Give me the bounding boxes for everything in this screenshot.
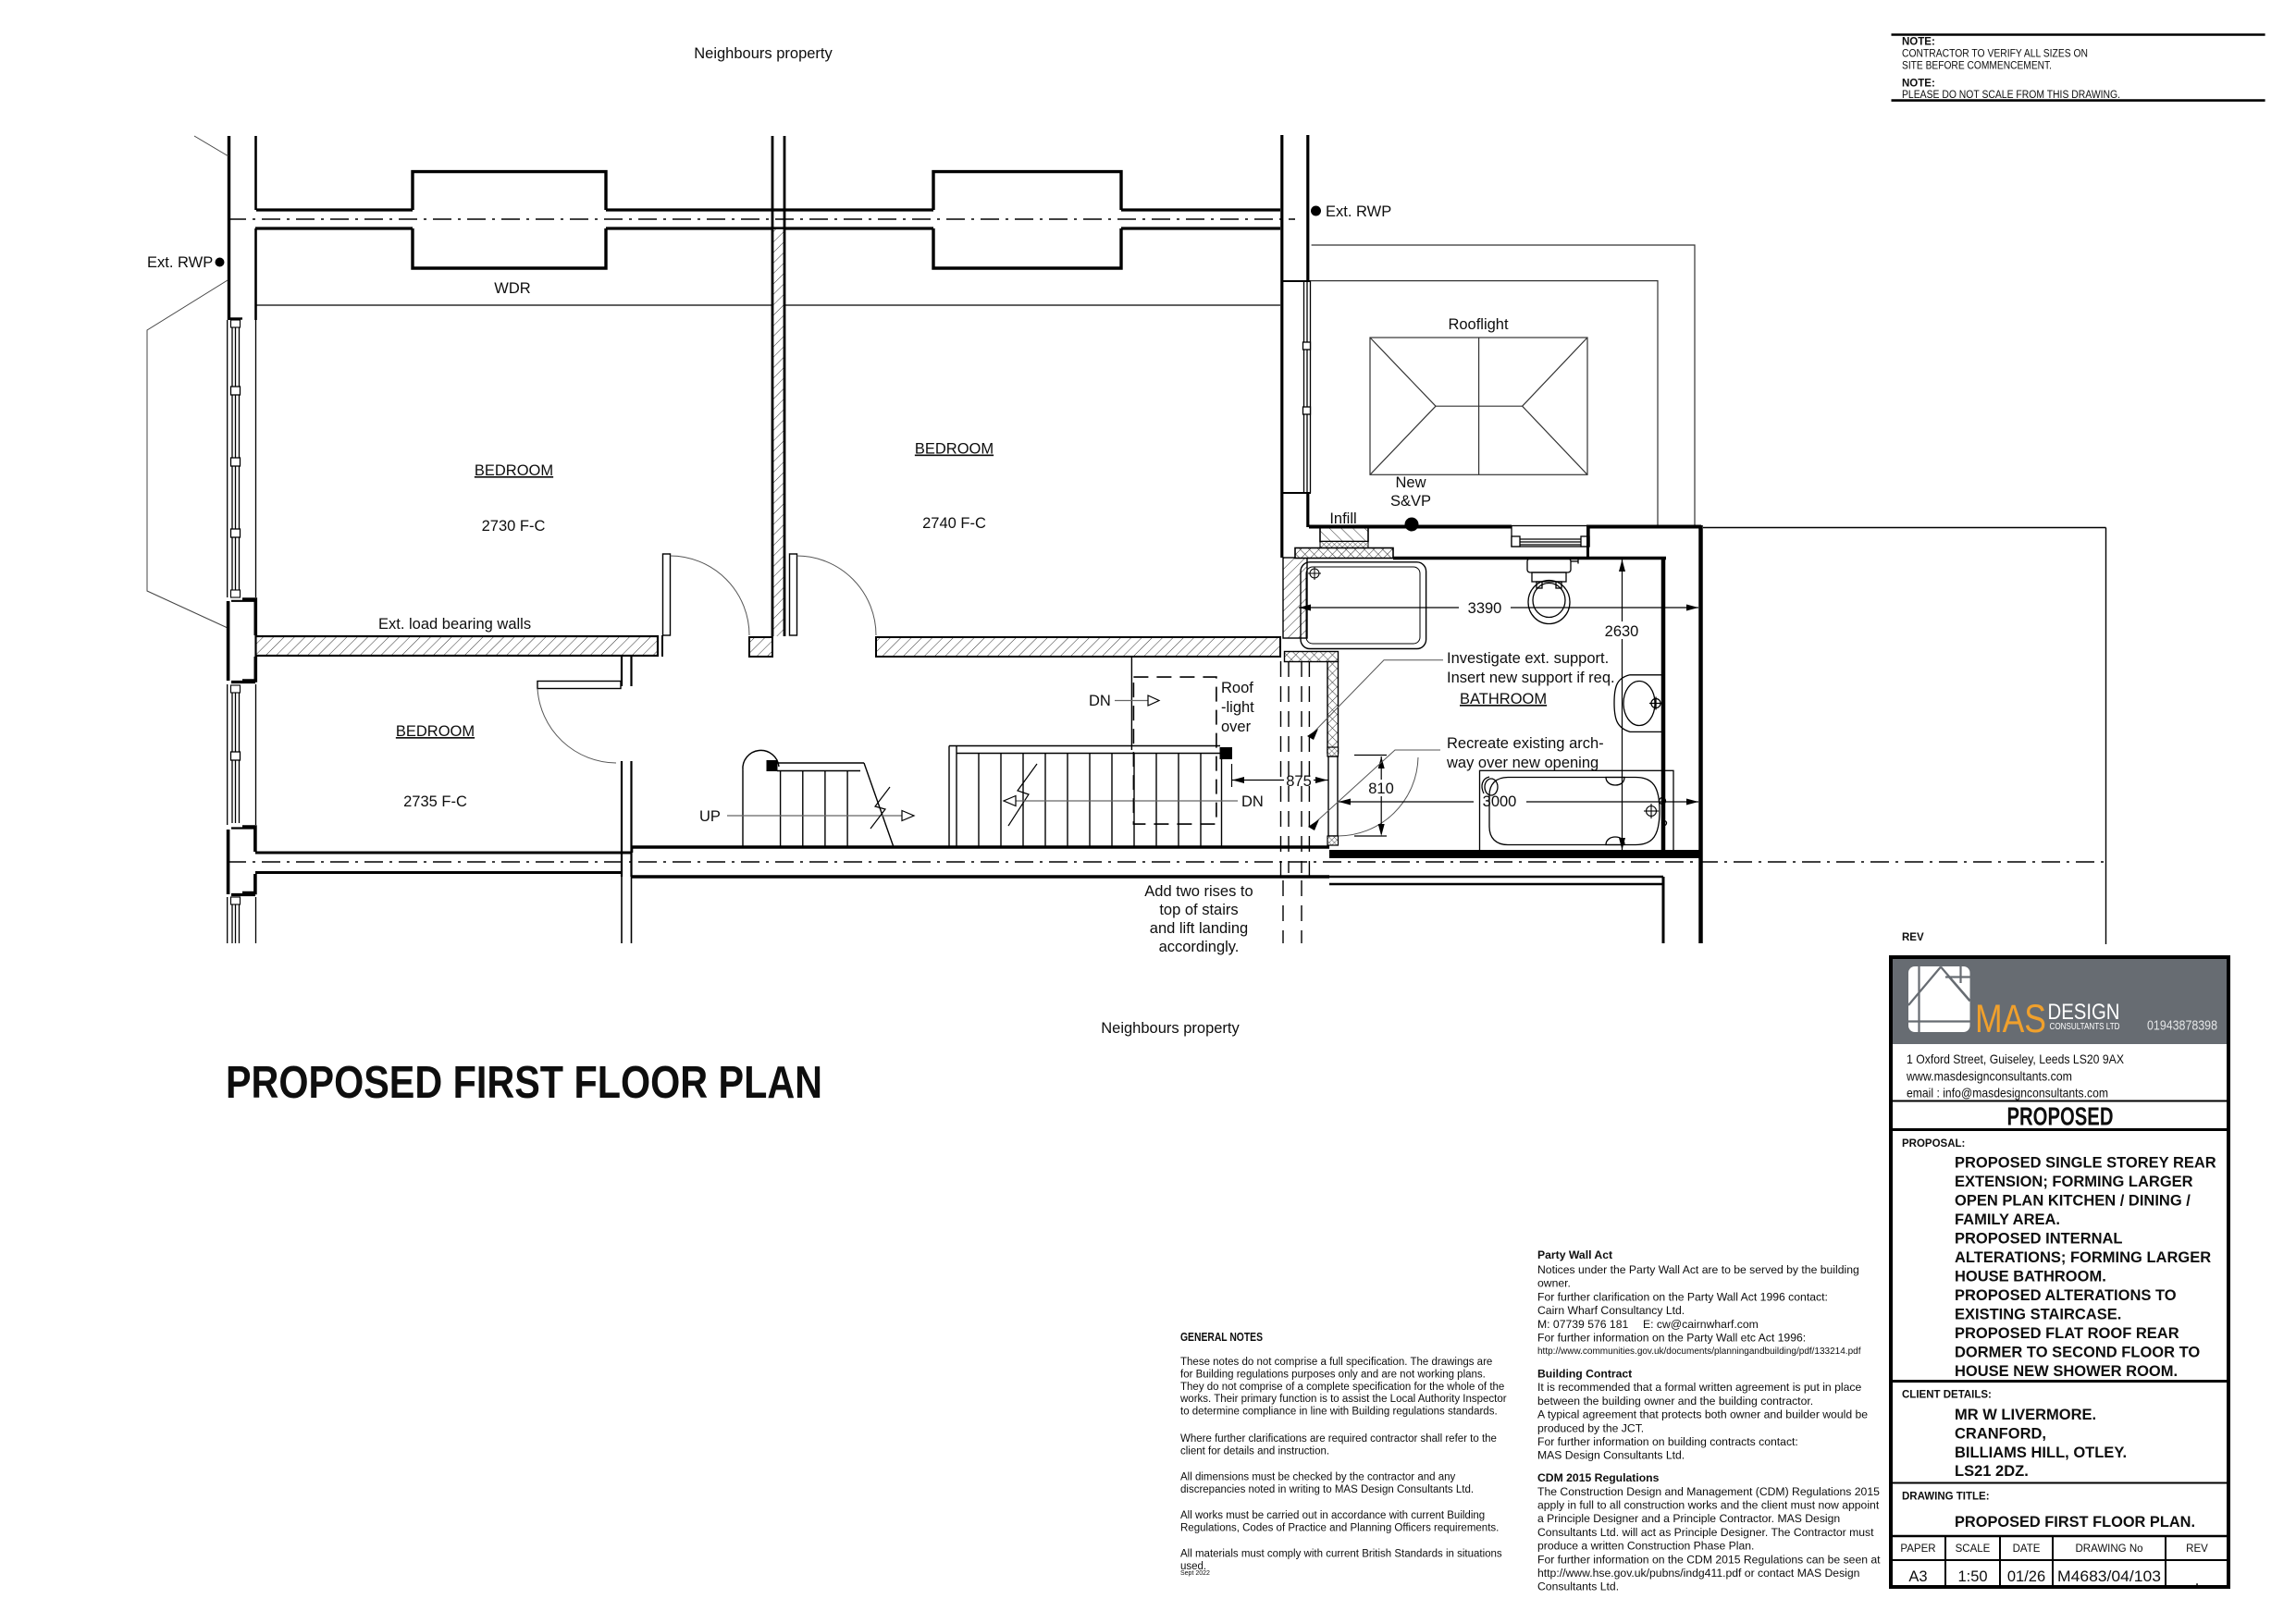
svg-text:DRAWING No: DRAWING No: [2075, 1543, 2142, 1555]
svg-text:Neighbours property: Neighbours property: [694, 45, 833, 62]
svg-text:DN: DN: [1241, 793, 1264, 810]
svg-text:BEDROOM: BEDROOM: [396, 723, 475, 740]
svg-text:www.masdesignconsultants.com: www.masdesignconsultants.com: [1906, 1068, 2072, 1083]
svg-text:OPEN PLAN KITCHEN / DINING /: OPEN PLAN KITCHEN / DINING /: [1955, 1193, 2191, 1210]
svg-text:The Construction Design and Ma: The Construction Design and Management (…: [1537, 1485, 1880, 1498]
svg-text:SCALE: SCALE: [1956, 1543, 1991, 1555]
svg-text:Building Contract: Building Contract: [1537, 1368, 1632, 1381]
svg-text:These notes do not comprise a: These notes do not comprise a full speci…: [1180, 1357, 1492, 1368]
svg-text:Insert new support if req.: Insert new support if req.: [1447, 670, 1615, 686]
svg-text:works. Their primary function: works. Their primary function is to assi…: [1179, 1394, 1507, 1405]
svg-text:BATHROOM: BATHROOM: [1460, 691, 1547, 707]
svg-text:NOTE:: NOTE:: [1902, 37, 1935, 48]
svg-text:Rooflight: Rooflight: [1448, 316, 1509, 333]
svg-text:Consultants Ltd.: Consultants Ltd.: [1537, 1580, 1619, 1593]
svg-text:-light: -light: [1221, 699, 1254, 716]
svg-text:ALTERATIONS; FORMING LARGER: ALTERATIONS; FORMING LARGER: [1955, 1249, 2211, 1266]
svg-text:875: 875: [1286, 773, 1312, 790]
svg-text:Regulations, Codes of Practice: Regulations, Codes of Practice and Plann…: [1180, 1522, 1499, 1533]
svg-text:Neighbours property: Neighbours property: [1101, 1020, 1240, 1037]
svg-text:PROPOSED: PROPOSED: [2007, 1102, 2114, 1131]
svg-text:3390: 3390: [1468, 600, 1502, 617]
svg-text:PROPOSED INTERNAL: PROPOSED INTERNAL: [1955, 1231, 2123, 1248]
svg-text:Where further clarifications a: Where further clarifications are require…: [1180, 1433, 1497, 1445]
svg-text:BEDROOM: BEDROOM: [915, 441, 994, 458]
svg-text:01943878398: 01943878398: [2147, 1019, 2217, 1034]
svg-text:for Building regulations purpo: for Building regulations purposes only a…: [1180, 1369, 1486, 1380]
svg-text:DRAWING TITLE:: DRAWING TITLE:: [1902, 1492, 1990, 1503]
svg-text:PROPOSED ALTERATIONS TO: PROPOSED ALTERATIONS TO: [1955, 1287, 2177, 1304]
svg-text:HOUSE BATHROOM.: HOUSE BATHROOM.: [1955, 1269, 2106, 1285]
svg-text:Roof: Roof: [1221, 680, 1253, 696]
svg-text:M: 07739 576 181: M: 07739 576 181: [1537, 1318, 1628, 1331]
svg-text:FAMILY AREA.: FAMILY AREA.: [1955, 1211, 2060, 1228]
svg-text:BEDROOM: BEDROOM: [475, 462, 553, 479]
svg-text:http://www.hse.gov.uk/pubns/in: http://www.hse.gov.uk/pubns/indg411.pdf …: [1537, 1567, 1859, 1580]
svg-text:LS21 2DZ.: LS21 2DZ.: [1955, 1463, 2029, 1480]
svg-text:For further information on bui: For further information on building cont…: [1537, 1435, 1798, 1448]
svg-text:REV: REV: [2186, 1543, 2208, 1555]
svg-text:apply in full to all construct: apply in full to all construction works …: [1537, 1499, 1880, 1512]
svg-text:Notices under the Party Wall A: Notices under the Party Wall Act are to …: [1537, 1263, 1859, 1276]
svg-text:For further clarification on t: For further clarification on the Party W…: [1537, 1290, 1828, 1303]
svg-text:Ext. RWP: Ext. RWP: [147, 254, 213, 271]
svg-text:CONTRACTOR TO VERIFY ALL SIZES: CONTRACTOR TO VERIFY ALL SIZES ON: [1902, 49, 2088, 60]
svg-text:2630: 2630: [1605, 623, 1639, 640]
svg-text:MR W LIVERMORE.: MR W LIVERMORE.: [1955, 1407, 2096, 1423]
svg-text:A typical agreement that prote: A typical agreement that protects both o…: [1537, 1408, 1868, 1421]
svg-text:MAS: MAS: [1975, 997, 2046, 1041]
svg-text:accordingly.: accordingly.: [1159, 939, 1240, 955]
svg-text:a Principle Designer and a Pri: a Principle Designer and a Principle Con…: [1537, 1512, 1840, 1525]
svg-text:2735 F-C: 2735 F-C: [403, 793, 467, 810]
svg-text:REV: REV: [1902, 932, 1924, 943]
svg-text:M4683/04/103: M4683/04/103: [2057, 1568, 2161, 1585]
svg-text:UP: UP: [699, 808, 721, 825]
svg-text:EXISTING STAIRCASE.: EXISTING STAIRCASE.: [1955, 1307, 2121, 1323]
svg-text:DN: DN: [1089, 693, 1111, 709]
svg-text:All works must be carried out: All works must be carried out in accorda…: [1180, 1510, 1485, 1521]
svg-text:CRANFORD,: CRANFORD,: [1955, 1425, 2046, 1442]
svg-text:S&VP: S&VP: [1390, 493, 1431, 510]
svg-text:DATE: DATE: [2013, 1543, 2041, 1555]
svg-text:All dimensions must be checked: All dimensions must be checked by the co…: [1180, 1472, 1455, 1483]
svg-text:Ext. load bearing walls: Ext. load bearing walls: [378, 616, 531, 633]
svg-text:top of stairs: top of stairs: [1159, 902, 1238, 918]
svg-text:It is recommended that a forma: It is recommended that a formal written …: [1537, 1381, 1861, 1394]
svg-text:Cairn Wharf Consultancy Ltd.: Cairn Wharf Consultancy Ltd.: [1537, 1304, 1685, 1317]
svg-text:and lift landing: and lift landing: [1150, 920, 1248, 937]
svg-text:810: 810: [1368, 781, 1394, 797]
svg-text:email : info@masdesignconsulta: email : info@masdesignconsultants.com: [1907, 1086, 2108, 1100]
svg-text:2730 F-C: 2730 F-C: [482, 518, 546, 535]
svg-text:CDM 2015 Regulations: CDM 2015 Regulations: [1537, 1471, 1660, 1484]
svg-text:3000: 3000: [1483, 793, 1517, 810]
svg-text:Add two rises to: Add two rises to: [1144, 883, 1253, 900]
svg-text:PROPOSED FIRST FLOOR PLAN: PROPOSED FIRST FLOOR PLAN: [226, 1058, 822, 1108]
svg-text:Party Wall Act: Party Wall Act: [1537, 1248, 1612, 1261]
svg-text:MAS Design Consultants Ltd.: MAS Design Consultants Ltd.: [1537, 1449, 1685, 1462]
svg-text:produce a written Construction: produce a written Construction Phase Pla…: [1537, 1540, 1754, 1553]
svg-text:to determine compliance in lin: to determine compliance in line with Bui…: [1180, 1407, 1498, 1418]
svg-text:Recreate existing arch-: Recreate existing arch-: [1447, 735, 1604, 752]
svg-text:All materials must comply with: All materials must comply with current B…: [1180, 1549, 1502, 1560]
svg-text:New: New: [1395, 474, 1426, 491]
svg-text:A3: A3: [1908, 1568, 1927, 1585]
svg-text:PROPOSED FIRST FLOOR PLAN.: PROPOSED FIRST FLOOR PLAN.: [1955, 1514, 2195, 1531]
svg-text:NOTE:: NOTE:: [1902, 79, 1935, 90]
svg-text:HOUSE NEW SHOWER ROOM.: HOUSE NEW SHOWER ROOM.: [1955, 1363, 2178, 1380]
svg-text:over: over: [1221, 719, 1252, 735]
svg-text:PAPER: PAPER: [1900, 1543, 1935, 1555]
svg-text:between the building owner and: between the building owner and the build…: [1537, 1395, 1813, 1408]
svg-text:client for details and instruc: client for details and instruction.: [1180, 1445, 1329, 1457]
svg-text:discrepancies noted in writing: discrepancies noted in writing to MAS De…: [1180, 1484, 1474, 1495]
svg-text:1 Oxford Street, Guiseley, Lee: 1 Oxford Street, Guiseley, Leeds LS20 9A…: [1907, 1051, 2125, 1066]
svg-text:Infill: Infill: [1329, 510, 1356, 527]
svg-text:For further information on the: For further information on the Party Wal…: [1537, 1332, 1806, 1345]
svg-text:For further information on the: For further information on the CDM 2015 …: [1537, 1553, 1881, 1566]
svg-text:PROPOSED SINGLE STOREY REAR: PROPOSED SINGLE STOREY REAR: [1955, 1155, 2216, 1172]
svg-text:way over new opening: way over new opening: [1446, 755, 1599, 771]
svg-text:Sept 2022: Sept 2022: [1180, 1570, 1210, 1577]
svg-text:Investigate ext. support.: Investigate ext. support.: [1447, 650, 1609, 667]
svg-text:CONSULTANTS LTD: CONSULTANTS LTD: [2050, 1021, 2120, 1032]
svg-text:http://www.communities.gov.uk/: http://www.communities.gov.uk/documents/…: [1537, 1346, 1861, 1357]
svg-text:2740 F-C: 2740 F-C: [922, 515, 986, 532]
svg-text:GENERAL NOTES: GENERAL NOTES: [1180, 1330, 1263, 1344]
svg-text:CLIENT DETAILS:: CLIENT DETAILS:: [1902, 1390, 1992, 1401]
svg-text:PLEASE DO NOT SCALE FROM THIS: PLEASE DO NOT SCALE FROM THIS DRAWING.: [1902, 90, 2120, 101]
svg-text:owner.: owner.: [1537, 1277, 1571, 1290]
svg-text:PROPOSED FLAT ROOF REAR: PROPOSED FLAT ROOF REAR: [1955, 1325, 2179, 1342]
svg-text:They do not comprise of a comp: They do not comprise of a complete speci…: [1180, 1382, 1504, 1393]
svg-text:BILLIAMS HILL, OTLEY.: BILLIAMS HILL, OTLEY.: [1955, 1445, 2127, 1461]
svg-text:EXTENSION; FORMING LARGER: EXTENSION; FORMING LARGER: [1955, 1174, 2193, 1190]
svg-text:1:50: 1:50: [1957, 1568, 1987, 1585]
svg-text:Consultants Ltd. will act as P: Consultants Ltd. will act as Principle D…: [1537, 1526, 1874, 1539]
svg-text:Ext. RWP: Ext. RWP: [1326, 203, 1391, 220]
svg-text:01/26: 01/26: [2007, 1568, 2045, 1585]
svg-text:PROPOSAL:: PROPOSAL:: [1902, 1138, 1965, 1150]
svg-text:SITE BEFORE COMMENCEMENT.: SITE BEFORE COMMENCEMENT.: [1902, 61, 2052, 72]
svg-text:WDR: WDR: [494, 280, 530, 297]
svg-text:produced by the JCT.: produced by the JCT.: [1537, 1421, 1644, 1434]
svg-text:E: cw@cairnwharf.com: E: cw@cairnwharf.com: [1643, 1318, 1759, 1331]
svg-text:DORMER TO SECOND FLOOR TO: DORMER TO SECOND FLOOR TO: [1955, 1345, 2200, 1361]
